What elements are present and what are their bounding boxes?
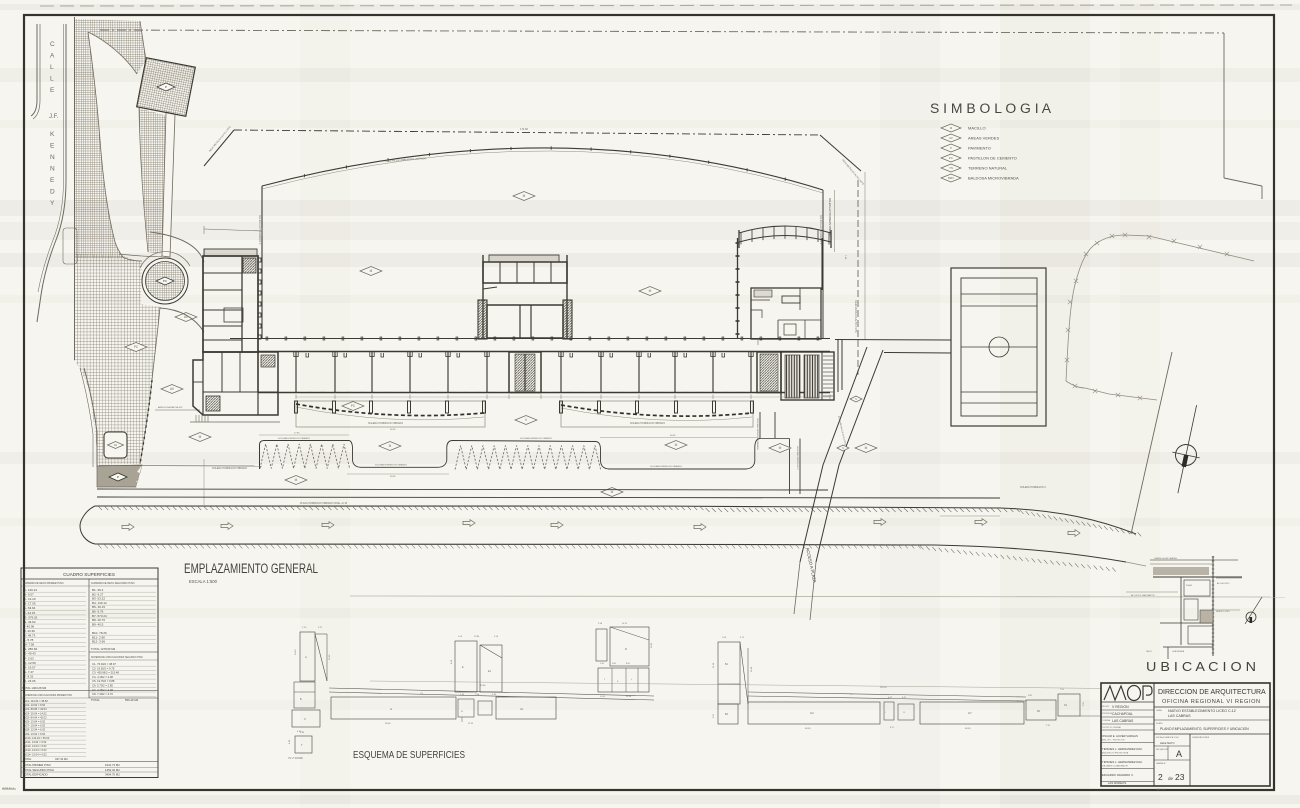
svg-text:M: M xyxy=(523,194,526,198)
svg-text:AC7- 19.04 = 9.52: AC7- 19.04 = 9.52 xyxy=(24,724,46,728)
svg-text:U B I C A C I O N: U B I C A C I O N xyxy=(1146,659,1256,674)
svg-text:TERRENO NATURAL: TERRENO NATURAL xyxy=(968,166,1008,171)
svg-text:AV: AV xyxy=(114,443,118,447)
svg-text:SUPERFICIE CIRCULACIONES PRIME: SUPERFICIE CIRCULACIONES PRIMER PISO xyxy=(23,694,72,697)
svg-text:FECHA 1998: FECHA 1998 xyxy=(1156,748,1169,751)
svg-text:ESCALA 1:500: ESCALA 1:500 xyxy=(189,579,218,584)
svg-text:U- 23.06: U- 23.06 xyxy=(24,679,36,683)
svg-text:AC8- 12.04 = 6.02: AC8- 12.04 = 6.02 xyxy=(24,728,46,732)
svg-text:SUPERFICIE NETA SEGUNDO PISO: SUPERFICIE NETA SEGUNDO PISO xyxy=(91,581,135,585)
svg-text:T- 9.32: T- 9.32 xyxy=(24,674,34,678)
svg-text:TOTAL SEGUNDO PISO: TOTAL SEGUNDO PISO xyxy=(23,768,55,772)
svg-text:G1: G1 xyxy=(520,707,524,711)
svg-text:TOTAL PRIMER PISO: TOTAL PRIMER PISO xyxy=(23,763,52,767)
svg-text:SOLERA HORMIGON V.: SOLERA HORMIGON V. xyxy=(1020,486,1047,489)
svg-text:TIRSOES L. HERNANDEZ DAC: TIRSOES L. HERNANDEZ DAC xyxy=(1102,760,1142,764)
svg-text:TN: TN xyxy=(949,166,953,170)
svg-text:SOLERA HORMIGON VIBRADO: SOLERA HORMIGON VIBRADO xyxy=(278,437,310,440)
svg-text:M: M xyxy=(370,269,373,273)
svg-text:M: M xyxy=(199,435,202,439)
svg-text:G: G xyxy=(390,707,392,711)
svg-text:23: 23 xyxy=(1175,772,1185,782)
svg-text:F- 44.15: F- 44.15 xyxy=(24,611,36,615)
svg-text:REJA METALICA ALTO 2 MTS: REJA METALICA ALTO 2 MTS xyxy=(854,300,857,333)
svg-text:TIRSOES L. HERNANDEZ DAC: TIRSOES L. HERNANDEZ DAC xyxy=(1102,747,1142,751)
svg-text:AC2- 13.04 = 6.52: AC2- 13.04 = 6.52 xyxy=(24,703,46,707)
svg-text:C: C xyxy=(304,717,306,721)
svg-text:BALDOSA MICROVIBRADA: BALDOSA MICROVIBRADA xyxy=(968,176,1019,181)
svg-text:O- 49.43: O- 49.43 xyxy=(24,652,36,656)
svg-text:NUEVO ESTABLECIMIENTO LICEO: NUEVO ESTABLECIMIENTO LICEO C-12 xyxy=(1168,709,1236,713)
svg-text:48.05: 48.05 xyxy=(965,728,971,730)
svg-text:SOLERILLA HORMIGON VIBRADO: SOLERILLA HORMIGON VIBRADO xyxy=(828,198,831,237)
svg-text:116.16: 116.16 xyxy=(880,687,887,689)
svg-text:SOLERA HORMIGON VIBRADO: SOLERA HORMIGON VIBRADO xyxy=(375,464,407,467)
svg-text:V REGION: V REGION xyxy=(1112,705,1129,709)
svg-text:174.90: 174.90 xyxy=(520,127,528,131)
svg-text:C2- 19.50/2 = 9.75: C2- 19.50/2 = 9.75 xyxy=(92,666,115,670)
svg-text:P: P xyxy=(165,85,167,89)
svg-text:AC12- 13.04 = 6.52: AC12- 13.04 = 6.52 xyxy=(24,744,47,748)
svg-text:AC6- 13.04 = 6.52: AC6- 13.04 = 6.52 xyxy=(24,720,46,724)
svg-text:ARQ. OF. L. PROYECTOS: ARQ. OF. L. PROYECTOS xyxy=(1102,739,1125,742)
svg-text:13.36: 13.36 xyxy=(626,696,632,698)
svg-text:N: N xyxy=(50,154,55,161)
svg-text:LAMINA N: LAMINA N xyxy=(1156,762,1166,765)
svg-text:Y: Y xyxy=(50,200,55,207)
svg-text:10.32: 10.32 xyxy=(651,642,653,648)
svg-text:C- 19.20: C- 19.20 xyxy=(24,597,36,601)
svg-text:de: de xyxy=(1168,776,1174,781)
svg-text:S: S xyxy=(855,397,857,401)
svg-text:SOLERA HORMIGON VIBRADO: SOLERA HORMIGON VIBRADO xyxy=(368,422,403,425)
svg-text:M: M xyxy=(779,446,782,450)
svg-text:PLANO EMPLAZAMIENTO, SUPERFI: PLANO EMPLAZAMIENTO, SUPERFICIES Y UBICA… xyxy=(1160,727,1249,731)
svg-text:ARBOLEDA NATIVA 4X4: ARBOLEDA NATIVA 4X4 xyxy=(158,406,183,409)
svg-text:VV. 2° ETAPA: VV. 2° ETAPA xyxy=(288,757,303,760)
svg-text:C4- 4.16/2 = 2.08: C4- 4.16/2 = 2.08 xyxy=(92,675,113,679)
svg-text:15.95: 15.95 xyxy=(329,654,331,660)
svg-text:E- 63.64: E- 63.64 xyxy=(24,606,36,610)
svg-text:OFICINA REGIONAL VI REG: OFICINA REGIONAL VI REGION xyxy=(1162,699,1261,705)
svg-text:S I M B O L O G I A: S I M B O L O G I A xyxy=(930,101,1051,116)
svg-text:12.80: 12.80 xyxy=(474,636,480,638)
svg-text:MACILLO: MACILLO xyxy=(968,126,986,131)
svg-text:DIBUJANTE COLABORADOR: DIBUJANTE COLABORADOR xyxy=(1102,765,1128,768)
svg-text:CALLE: CALLE xyxy=(1146,650,1152,653)
svg-text:PASTELON DE CEMENTO: PASTELON DE CEMENTO xyxy=(968,156,1017,161)
svg-text:I- 40.96: I- 40.96 xyxy=(24,624,35,628)
svg-text:NUEVO LICEO: NUEVO LICEO xyxy=(1216,611,1230,613)
svg-text:PLAZA HORMIGON VIBRADO NIVEL +: PLAZA HORMIGON VIBRADO NIVEL +0.15 xyxy=(300,502,348,505)
svg-text:A- 139.24: A- 139.24 xyxy=(24,588,37,592)
svg-text:E: E xyxy=(50,87,55,94)
svg-text:M: M xyxy=(675,443,678,447)
svg-text:LAS CABRAS: LAS CABRAS xyxy=(1168,714,1191,718)
svg-text:J.F.: J.F. xyxy=(49,114,59,120)
svg-text:AC11- 13.04 = 6.52: AC11- 13.04 = 6.52 xyxy=(24,740,47,744)
svg-text:E: E xyxy=(50,177,55,184)
svg-text:TOTAL 1403.28 M2: TOTAL 1403.28 M2 xyxy=(22,686,47,690)
svg-text:1941.73 M2: 1941.73 M2 xyxy=(105,763,120,767)
svg-text:AC4- 29.04 = 14.52: AC4- 29.04 = 14.52 xyxy=(24,711,47,715)
svg-text:LELE MAYO: LELE MAYO xyxy=(1160,741,1175,745)
svg-text:SOLERILLA HORMIGON V.: SOLERILLA HORMIGON V. xyxy=(258,215,261,245)
svg-text:CUADRO SUPERFICIES: CUADRO SUPERFICIES xyxy=(63,572,115,577)
svg-text:G- 379.02: G- 379.02 xyxy=(24,615,38,619)
svg-text:S: S xyxy=(842,446,844,450)
svg-text:14.20: 14.20 xyxy=(713,662,715,668)
svg-text:M: M xyxy=(389,444,392,448)
svg-text:PC: PC xyxy=(949,156,953,160)
svg-text:16.90: 16.90 xyxy=(751,666,753,672)
svg-text:EDUARDO NAVARRO V.: EDUARDO NAVARRO V. xyxy=(1102,773,1134,777)
svg-text:M- 7.56: M- 7.56 xyxy=(24,643,35,647)
svg-text:J- 43.39: J- 43.39 xyxy=(24,629,35,633)
svg-text:C1- 76.94/2 = 38.97: C1- 76.94/2 = 38.97 xyxy=(92,662,116,666)
svg-text:K: K xyxy=(50,131,55,138)
svg-text:P- 2.63: P- 2.63 xyxy=(24,656,34,660)
svg-text:L: L xyxy=(50,76,54,83)
svg-text:A: A xyxy=(1176,749,1182,759)
svg-text:B12- 3.96: B12- 3.96 xyxy=(92,640,105,644)
svg-text:L- 5.78: L- 5.78 xyxy=(24,638,34,642)
svg-text:P: P xyxy=(117,475,119,479)
svg-text:R- 19.57: R- 19.57 xyxy=(24,665,36,669)
svg-text:M: M xyxy=(295,478,298,482)
svg-text:48.05: 48.05 xyxy=(805,728,811,730)
svg-text:D: D xyxy=(50,189,55,196)
svg-text:46.65: 46.65 xyxy=(670,435,676,437)
svg-text:36.90: 36.90 xyxy=(390,429,396,431)
svg-text:SOLERA HORMIGON VIBRADO: SOLERA HORMIGON VIBRADO xyxy=(520,437,552,440)
svg-text:REGION: REGION xyxy=(1102,706,1110,708)
svg-text:DIRECCION DE ARQUITECTURA: DIRECCION DE ARQUITECTURA xyxy=(1158,689,1266,696)
svg-text:CAMINO A LAS CABRAS: CAMINO A LAS CABRAS xyxy=(1154,557,1177,560)
svg-text:PLANO: PLANO xyxy=(1156,722,1163,725)
svg-text:SOLERA HORMIGON V.: SOLERA HORMIGON V. xyxy=(796,446,799,470)
svg-text:AREAS VERDES: AREAS VERDES xyxy=(968,136,999,141)
svg-text:ESCALA GRAFICA 1:500: ESCALA GRAFICA 1:500 xyxy=(1156,736,1180,739)
svg-text:E: E xyxy=(50,143,55,150)
svg-text:OSCAR E. AUVER VARGAS: OSCAR E. AUVER VARGAS xyxy=(1102,734,1138,738)
svg-text:SOLERA HORMIGON VIBRADO: SOLERA HORMIGON VIBRADO xyxy=(212,467,247,470)
svg-text:17.80: 17.80 xyxy=(294,433,300,435)
svg-text:AC3- 89.08 = 44.54: AC3- 89.08 = 44.54 xyxy=(24,707,47,711)
svg-text:L: L xyxy=(50,64,54,71)
svg-text:COMUNA: COMUNA xyxy=(1102,719,1111,722)
svg-text:SOLERA HORMIGON VIBRADO: SOLERA HORMIGON VIBRADO xyxy=(650,465,682,468)
svg-text:A: A xyxy=(50,53,55,60)
svg-text:TOTAL: TOTAL xyxy=(91,698,100,702)
svg-text:SOLERA HORMIGON VIBRADO: SOLERA HORMIGON VIBRADO xyxy=(756,418,759,450)
svg-text:ARQUITECTO PROYECTISTA: ARQUITECTO PROYECTISTA xyxy=(1102,752,1129,755)
svg-text:K- 49.73: K- 49.73 xyxy=(24,634,36,638)
svg-text:M: M xyxy=(611,490,614,494)
svg-text:3404.75 M2: 3404.75 M2 xyxy=(105,773,120,777)
svg-text:C5- 19.76/2 = 9.88: C5- 19.76/2 = 9.88 xyxy=(92,679,115,683)
svg-text:G7: G7 xyxy=(968,711,972,715)
svg-text:10.94: 10.94 xyxy=(600,696,606,698)
svg-text:4-04 E+1: 4-04 E+1 xyxy=(2,786,15,790)
svg-text:38.08: 38.08 xyxy=(385,723,391,725)
svg-text:M: M xyxy=(649,289,652,293)
svg-text:AC14- 13.04 = 6.52: AC14- 13.04 = 6.52 xyxy=(24,752,47,756)
svg-text:556.26 M2: 556.26 M2 xyxy=(125,698,139,702)
svg-text:B- 9.57: B- 9.57 xyxy=(24,593,34,597)
svg-text:PROVINCIA: PROVINCIA xyxy=(1102,712,1113,715)
svg-text:AV. LA LICEO: AV. LA LICEO xyxy=(1217,582,1230,585)
svg-text:1452.32 M2: 1452.32 M2 xyxy=(105,768,120,772)
svg-text:C: C xyxy=(50,41,55,48)
svg-text:14.12: 14.12 xyxy=(622,623,628,625)
svg-text:AC9- 13.04 = 6.52: AC9- 13.04 = 6.52 xyxy=(24,732,46,736)
svg-text:C6- 5.70/2 = 2.85: C6- 5.70/2 = 2.85 xyxy=(92,684,113,688)
svg-text:D: D xyxy=(625,647,627,651)
svg-text:45.80: 45.80 xyxy=(480,685,486,687)
svg-text:D- 17.05: D- 17.05 xyxy=(24,602,36,606)
svg-text:36.90: 36.90 xyxy=(390,476,396,478)
svg-text:P: P xyxy=(950,146,952,150)
svg-text:PLAZA: PLAZA xyxy=(1186,584,1192,587)
svg-text:11.35: 11.35 xyxy=(468,723,474,725)
svg-text:SUPERFICIE NETA PRIMER PISO: SUPERFICIE NETA PRIMER PISO xyxy=(23,581,64,585)
svg-text:TOTAL: TOTAL xyxy=(23,757,32,761)
svg-text:B9- 40.5: B9- 40.5 xyxy=(92,622,104,626)
svg-text:14.20: 14.20 xyxy=(295,649,297,655)
svg-text:AC13- 12.04 = 6.02: AC13- 12.04 = 6.02 xyxy=(24,748,47,752)
svg-text:TOTAL 1278.06 M2: TOTAL 1278.06 M2 xyxy=(91,647,116,651)
svg-text:H- 43.62: H- 43.62 xyxy=(24,620,36,624)
svg-text:LAS RODEOS: LAS RODEOS xyxy=(1108,781,1126,785)
svg-text:AC10- 112.04 = 56.02: AC10- 112.04 = 56.02 xyxy=(24,736,50,740)
svg-text:LAM N 001: LAM N 001 xyxy=(1156,788,1167,791)
svg-text:C8- 7.40/2 = 3.70: C8- 7.40/2 = 3.70 xyxy=(92,692,113,696)
svg-text:2: 2 xyxy=(1158,772,1163,782)
svg-text:TOTAL EDIFICADO: TOTAL EDIFICADO xyxy=(23,773,48,777)
svg-text:PC: PC xyxy=(351,404,356,408)
svg-text:AC1- 112.04 = 35.52: AC1- 112.04 = 35.52 xyxy=(24,699,48,703)
svg-text:BMV: BMV xyxy=(948,176,954,180)
svg-text:PAVIMENTO: PAVIMENTO xyxy=(968,146,991,151)
svg-text:Q- 12.59: Q- 12.59 xyxy=(24,661,36,665)
svg-text:PROYECTO ORIGINAL: PROYECTO ORIGINAL xyxy=(1102,726,1121,729)
svg-text:A: A xyxy=(305,655,307,659)
svg-text:C7- 4.76/2 = 2.38: C7- 4.76/2 = 2.38 xyxy=(92,688,113,692)
svg-text:LAS CABRAS: LAS CABRAS xyxy=(1112,719,1134,723)
svg-text:SOLERA HORMIGON VIBRADO: SOLERA HORMIGON VIBRADO xyxy=(630,422,665,425)
svg-text:M: M xyxy=(865,446,868,450)
svg-text:AV. LIBT. B. SAN MARTIN: AV. LIBT. B. SAN MARTIN xyxy=(1131,594,1155,597)
svg-text:J: J xyxy=(604,679,605,681)
svg-text:437.34 M2: 437.34 M2 xyxy=(55,757,68,761)
svg-text:G4: G4 xyxy=(810,711,814,715)
svg-text:GUAY ARRIBA: GUAY ARRIBA xyxy=(1172,650,1185,653)
svg-text:AV: AV xyxy=(949,136,953,140)
svg-text:OBRA: OBRA xyxy=(1156,709,1162,712)
svg-text:S- 7.47: S- 7.47 xyxy=(24,670,34,674)
svg-text:CACHAPOAL: CACHAPOAL xyxy=(1112,712,1133,716)
svg-text:PC: PC xyxy=(134,345,139,349)
svg-text:OBSERVACIONES: OBSERVACIONES xyxy=(1192,736,1210,739)
svg-text:AC5- 84.04 = 42.02: AC5- 84.04 = 42.02 xyxy=(24,715,47,719)
svg-text:EMPLAZAMIENTO GENERAL: EMPLAZAMIENTO GENERAL xyxy=(184,561,318,576)
svg-text:SUPERFICIE CIRCULACIONES SEGUN: SUPERFICIE CIRCULACIONES SEGUNDO PISO xyxy=(91,656,143,659)
svg-text:N: N xyxy=(50,166,55,173)
svg-text:ESQUEMA DE SUPERFICIES: ESQUEMA DE SUPERFICIES xyxy=(353,750,465,761)
svg-text:C3- 430.96/2 = 215.48: C3- 430.96/2 = 215.48 xyxy=(92,671,119,675)
svg-text:N- 286.84: N- 286.84 xyxy=(24,647,38,651)
